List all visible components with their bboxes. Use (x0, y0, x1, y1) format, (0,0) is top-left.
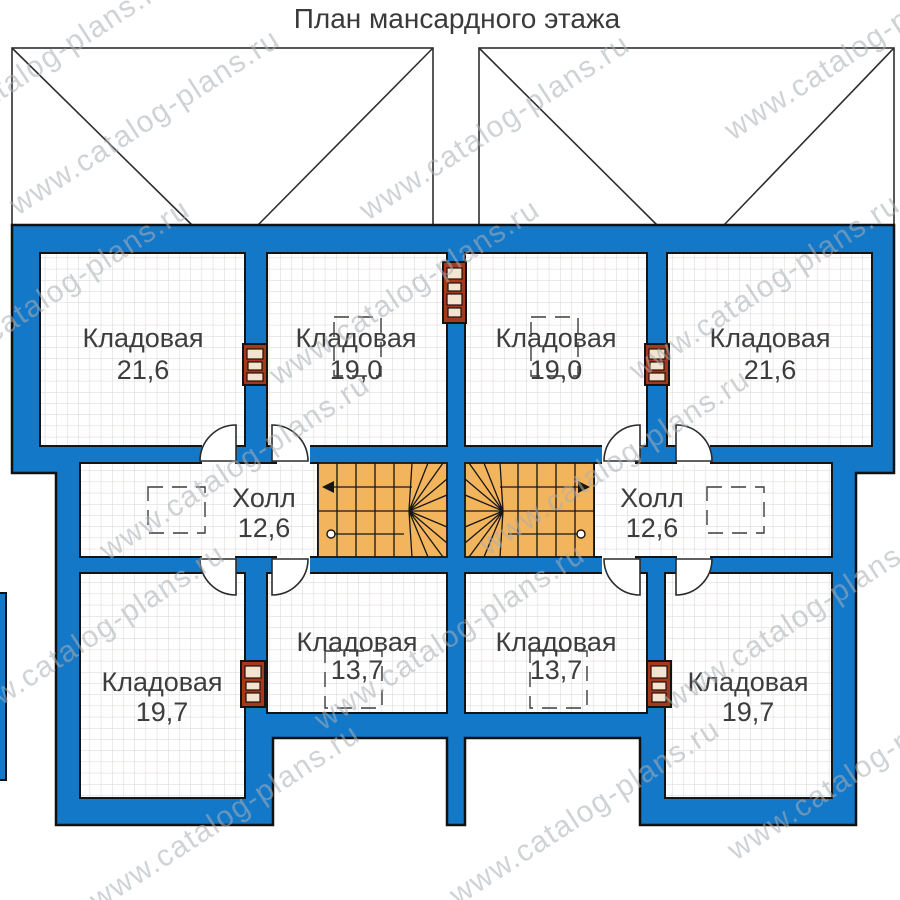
room-name: Кладовая (496, 627, 617, 657)
room-name: Холл (620, 483, 684, 513)
chimney-flue (246, 693, 260, 702)
chimney-flue (247, 349, 263, 359)
room-area: 21,6 (117, 355, 170, 385)
room-area: 19,0 (530, 355, 583, 385)
room-area: 12,6 (626, 513, 679, 543)
page-title: План мансардного этажа (294, 3, 621, 34)
staircase-left (318, 463, 447, 557)
room-area: 21,6 (744, 355, 797, 385)
floor-plan-page: Кладовая 21,6 Кладовая 19,0 Кладовая 19,… (0, 0, 900, 900)
chimney-flue (448, 308, 461, 317)
room-area: 13,7 (530, 655, 583, 685)
chimney-flue (447, 294, 462, 305)
chimney-flue (248, 362, 262, 370)
chimney-flue (246, 682, 260, 690)
stair-newel-post (577, 530, 585, 538)
room-area: 19,7 (136, 697, 189, 727)
floor-plan-drawing: Кладовая 21,6 Кладовая 19,0 Кладовая 19,… (0, 0, 900, 900)
stair-newel-post (327, 530, 335, 538)
chimney-flue (247, 373, 263, 381)
room-area: 12,6 (238, 513, 291, 543)
room-name: Кладовая (496, 323, 617, 353)
chimney-flue (448, 283, 461, 291)
room-name: Кладовая (102, 667, 223, 697)
chimney-flue (245, 666, 261, 678)
room-name: Холл (232, 483, 296, 513)
room-name: Кладовая (83, 323, 204, 353)
room-area: 19,7 (722, 697, 775, 727)
chimney-flue (651, 666, 667, 678)
